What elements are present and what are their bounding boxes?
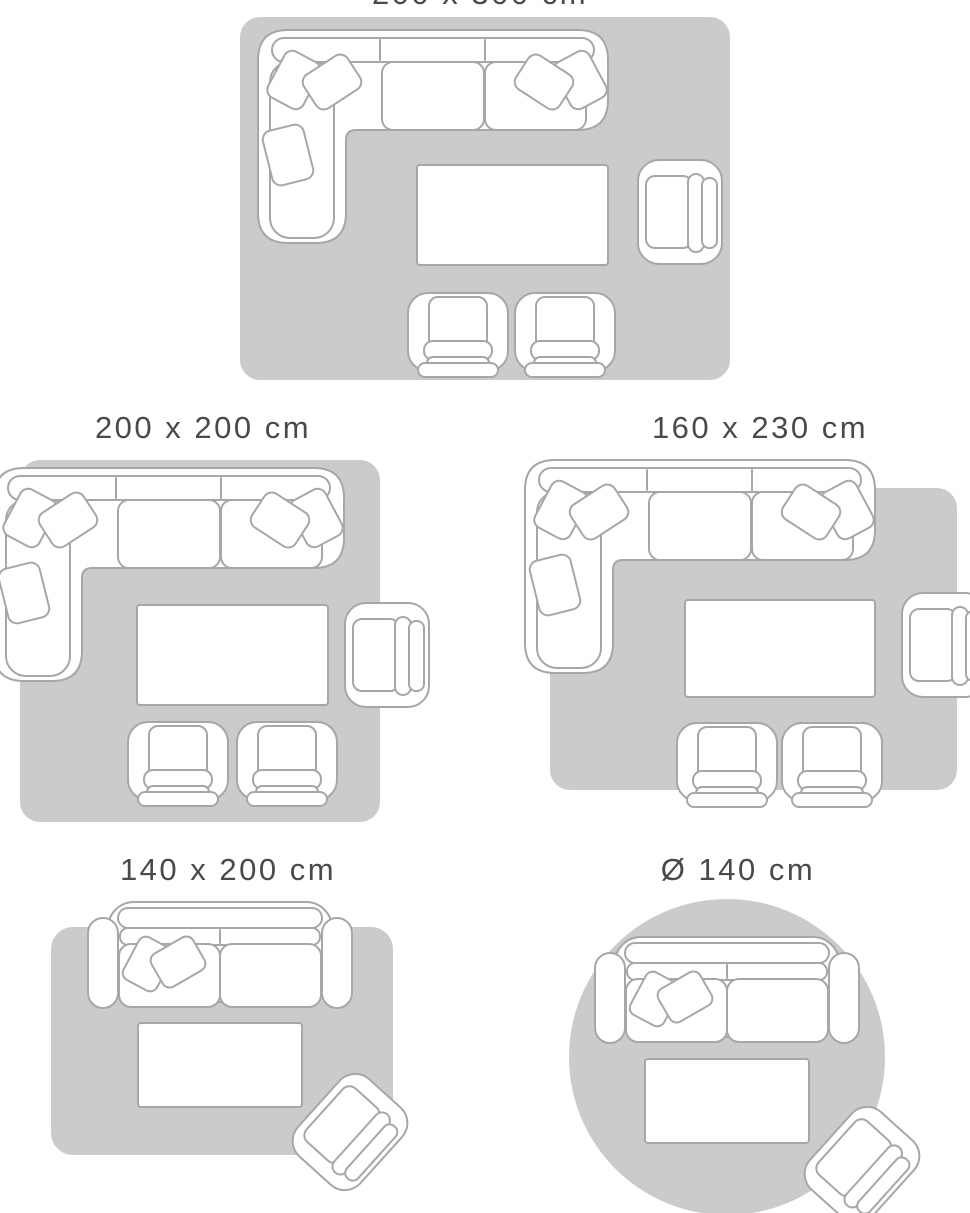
armchair-icon (345, 603, 429, 707)
armchair-icon (638, 160, 722, 264)
coffee-table-icon (417, 165, 608, 265)
room-layout-160x230 (505, 455, 970, 813)
two-seat-sofa-icon (595, 937, 859, 1043)
coffee-table-icon (137, 605, 328, 705)
room-layout-200x300 (240, 17, 730, 380)
room-layout-round-140 (555, 895, 970, 1213)
lounge-chair-icon (128, 722, 228, 806)
coffee-table-icon (685, 600, 875, 697)
size-label-160x230: 160 x 230 cm (600, 412, 920, 443)
coffee-table-icon (645, 1059, 809, 1143)
room-layout-200x200 (0, 455, 442, 827)
lounge-chair-icon (515, 293, 615, 377)
armchair-icon (902, 593, 970, 697)
lounge-chair-icon (408, 293, 508, 377)
coffee-table-icon (138, 1023, 302, 1107)
lounge-chair-icon (237, 722, 337, 806)
lounge-chair-icon (677, 723, 777, 807)
size-label-140x200: 140 x 200 cm (68, 854, 388, 885)
size-label-round-140: Ø 140 cm (578, 854, 898, 885)
rug-size-guide: 200 x 300 cm 200 x 200 cm 160 x 230 cm 1… (0, 0, 970, 1213)
size-label-200x200: 200 x 200 cm (43, 412, 363, 443)
room-layout-140x200 (40, 895, 465, 1213)
size-label-200x300: 200 x 300 cm (320, 0, 640, 9)
two-seat-sofa-icon (88, 902, 352, 1008)
lounge-chair-icon (782, 723, 882, 807)
